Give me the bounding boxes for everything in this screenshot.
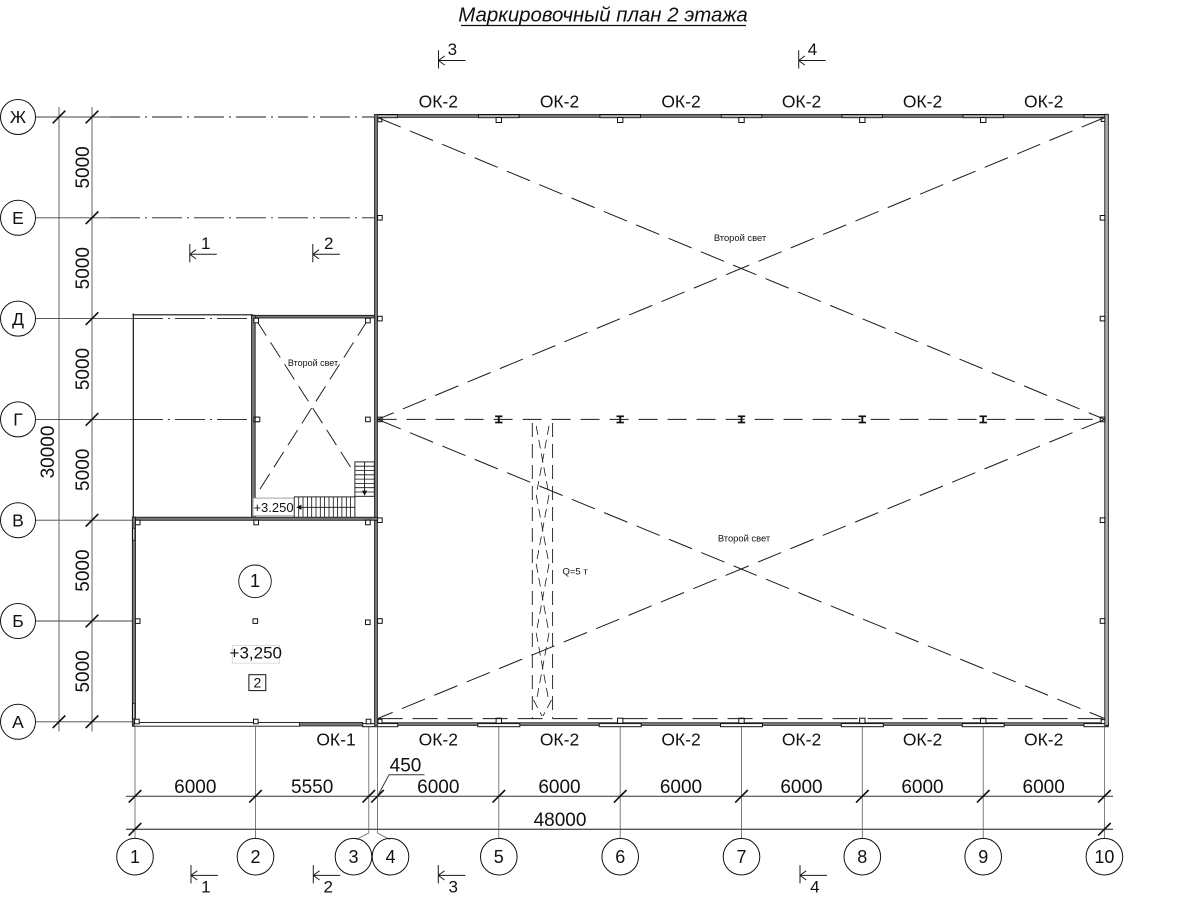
svg-text:9: 9 [978, 847, 988, 867]
svg-text:Q=5 т: Q=5 т [563, 567, 589, 578]
svg-text:5000: 5000 [73, 650, 94, 692]
svg-text:ОК-2: ОК-2 [540, 730, 579, 750]
svg-text:5000: 5000 [73, 348, 94, 390]
svg-text:5000: 5000 [73, 549, 94, 591]
svg-text:+3.250: +3.250 [253, 500, 293, 515]
svg-text:3: 3 [448, 40, 457, 59]
svg-text:Второй свет: Второй свет [288, 358, 338, 368]
svg-text:6000: 6000 [660, 777, 702, 798]
svg-text:30000: 30000 [38, 426, 59, 479]
svg-text:2: 2 [323, 877, 332, 896]
svg-text:Б: Б [12, 611, 23, 631]
svg-text:А: А [12, 712, 24, 732]
svg-text:Г: Г [13, 410, 23, 430]
svg-text:ОК-1: ОК-1 [316, 730, 355, 750]
svg-text:5: 5 [494, 847, 504, 867]
svg-text:5550: 5550 [291, 777, 333, 798]
svg-text:ОК-2: ОК-2 [782, 730, 821, 750]
svg-text:1: 1 [130, 847, 140, 867]
svg-text:ОК-2: ОК-2 [661, 92, 700, 112]
svg-text:6000: 6000 [417, 777, 459, 798]
svg-text:ОК-2: ОК-2 [419, 730, 458, 750]
svg-text:ОК-2: ОК-2 [782, 92, 821, 112]
svg-text:5000: 5000 [73, 449, 94, 491]
svg-text:7: 7 [736, 847, 746, 867]
svg-text:В: В [12, 510, 24, 530]
svg-text:ОК-2: ОК-2 [419, 92, 458, 112]
svg-text:6000: 6000 [538, 777, 580, 798]
svg-text:6: 6 [615, 847, 625, 867]
svg-text:1: 1 [201, 877, 210, 896]
svg-text:2: 2 [250, 847, 260, 867]
svg-text:8: 8 [857, 847, 867, 867]
svg-text:ОК-2: ОК-2 [903, 730, 942, 750]
svg-text:Второй свет: Второй свет [714, 232, 767, 243]
svg-text:4: 4 [808, 40, 817, 59]
svg-text:1: 1 [250, 570, 260, 591]
svg-text:4: 4 [385, 847, 395, 867]
svg-text:+3,250: +3,250 [230, 643, 282, 662]
svg-text:ОК-2: ОК-2 [661, 730, 700, 750]
svg-text:6000: 6000 [174, 777, 216, 798]
svg-text:ОК-2: ОК-2 [1024, 92, 1063, 112]
svg-text:6000: 6000 [1023, 777, 1065, 798]
svg-text:Маркировочный план 2 этажа: Маркировочный план 2 этажа [458, 4, 747, 26]
svg-text:ОК-2: ОК-2 [903, 92, 942, 112]
svg-text:ОК-2: ОК-2 [1024, 730, 1063, 750]
svg-text:1: 1 [201, 234, 210, 253]
svg-text:6000: 6000 [780, 777, 822, 798]
svg-text:5000: 5000 [73, 146, 94, 188]
svg-text:6000: 6000 [901, 777, 943, 798]
svg-text:Ж: Ж [10, 107, 26, 127]
svg-text:2: 2 [324, 234, 333, 253]
svg-text:3: 3 [348, 847, 358, 867]
svg-text:Д: Д [12, 309, 24, 329]
svg-text:4: 4 [810, 877, 819, 896]
svg-text:450: 450 [390, 755, 422, 776]
svg-text:3: 3 [448, 877, 457, 896]
svg-text:5000: 5000 [73, 247, 94, 289]
svg-text:Е: Е [12, 208, 24, 228]
svg-text:10: 10 [1094, 847, 1114, 867]
svg-text:Второй свет: Второй свет [718, 533, 771, 544]
svg-text:2: 2 [254, 675, 262, 691]
svg-text:ОК-2: ОК-2 [540, 92, 579, 112]
svg-text:48000: 48000 [534, 810, 587, 831]
